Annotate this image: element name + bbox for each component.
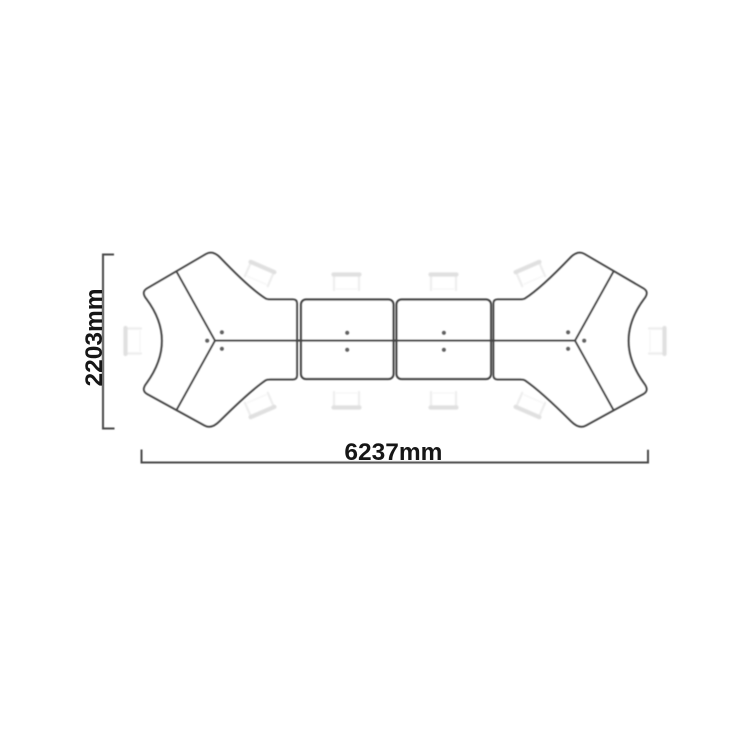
svg-text:6237mm: 6237mm bbox=[344, 439, 442, 466]
svg-text:2203mm: 2203mm bbox=[81, 288, 108, 386]
